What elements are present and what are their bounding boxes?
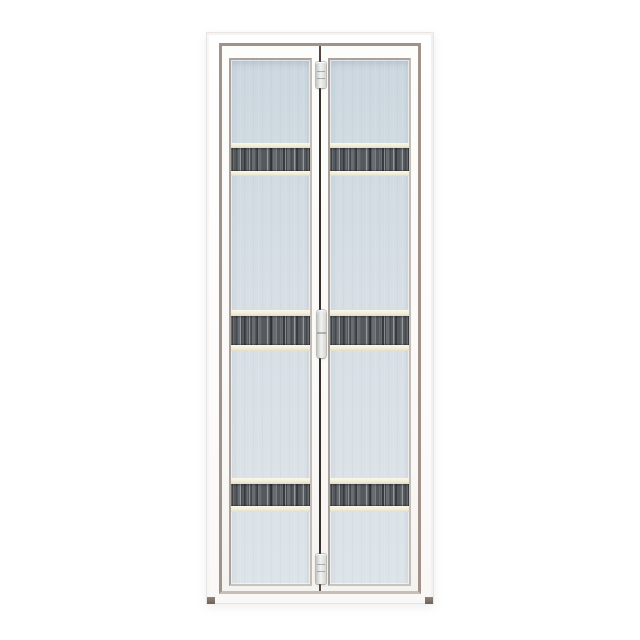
accent-strip-middle-right [330,310,409,351]
frame-foot-left [207,597,215,604]
door-leaf-left [222,46,319,591]
strip-grain [231,316,310,345]
strip-border-bottom [330,345,409,351]
glass-panel-right [328,58,411,586]
accent-strip-lower-right [330,478,409,512]
accent-strip-lower-left [231,478,310,512]
frame-foot-right [425,597,433,604]
strip-grain [330,148,409,171]
accent-strip-upper-left [231,143,310,176]
strip-border-bottom [330,171,409,176]
strip-grain [330,316,409,345]
door-leaf-right [321,46,418,591]
strip-border-bottom [231,506,310,512]
strip-border-bottom [330,506,409,512]
strip-grain [330,484,409,506]
accent-strip-middle-left [231,310,310,351]
bifold-door [206,32,434,604]
product-photo-canvas [0,0,640,640]
bottom-hinge [316,554,326,584]
strip-grain [231,148,310,171]
strip-grain [231,484,310,506]
accent-strip-upper-right [330,143,409,176]
strip-border-bottom [231,171,310,176]
door-handle [317,310,326,358]
glass-panel-left [229,58,312,586]
top-hinge [316,62,326,88]
strip-border-bottom [231,345,310,351]
